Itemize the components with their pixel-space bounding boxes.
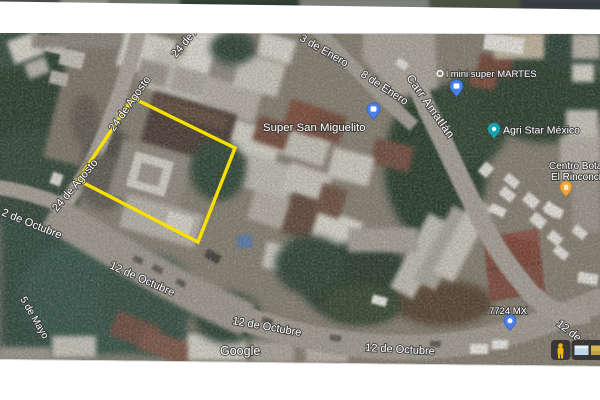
svg-text:El Rinconcito: El Rinconcito <box>551 172 600 183</box>
svg-text:Super San Miguelito: Super San Miguelito <box>263 122 366 134</box>
svg-text:Google: Google <box>220 344 260 358</box>
svg-text:Agri Star México: Agri Star México <box>503 125 580 137</box>
svg-text:Centro Botane: Centro Botane <box>549 161 600 172</box>
svg-text:l mini super MARTES: l mini super MARTES <box>446 69 537 80</box>
